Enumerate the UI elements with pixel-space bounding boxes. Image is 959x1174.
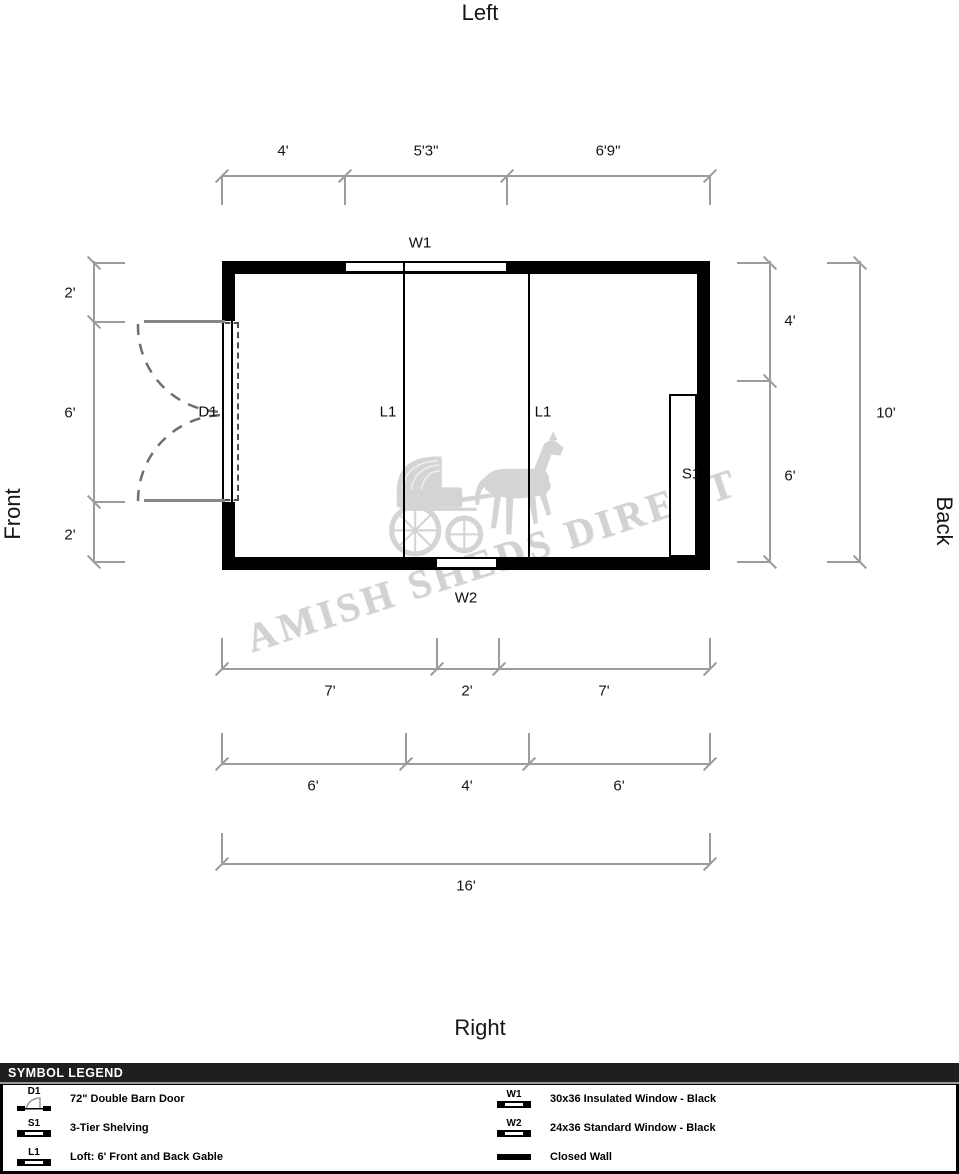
- dim-tick: [221, 638, 223, 668]
- label-w1: W1: [409, 235, 432, 252]
- legend-code: W1: [507, 1089, 522, 1100]
- shed-outer-walls: [222, 261, 710, 570]
- door-panel-top-open: [144, 320, 225, 323]
- legend-item-w2: W2 24x36 Standard Window - Black: [492, 1113, 716, 1142]
- window-w2: [436, 558, 497, 568]
- orientation-label-front: Front: [0, 488, 26, 539]
- label-s1: S1: [682, 466, 700, 483]
- legend-item-d1: D1 72" Double Barn Door: [12, 1084, 223, 1113]
- loft-symbol-icon: L1: [12, 1147, 56, 1166]
- dim-right-2: 6': [784, 468, 795, 485]
- dim-tick: [221, 833, 223, 863]
- shelving-symbol-icon: S1: [12, 1118, 56, 1137]
- label-l1-right: L1: [535, 404, 552, 421]
- dim-tick: [93, 501, 125, 503]
- label-l1-left: L1: [380, 404, 397, 421]
- door-panel-bottom-open: [144, 499, 225, 502]
- dim-tick: [528, 733, 530, 763]
- door-dashed-outline: [225, 322, 239, 501]
- legend-code: W2: [507, 1118, 522, 1129]
- dim-tick: [221, 175, 223, 205]
- dim-tick: [344, 175, 346, 205]
- legend-item-s1: S1 3-Tier Shelving: [12, 1113, 223, 1142]
- dim-right-outer-line: [859, 261, 861, 563]
- legend-desc: Closed Wall: [550, 1151, 612, 1163]
- dim-right-inner-line: [769, 261, 771, 563]
- dim-tick: [709, 175, 711, 205]
- dim-tick: [506, 175, 508, 205]
- dim-left-1: 2': [64, 285, 75, 302]
- dim-right-1: 4': [784, 313, 795, 330]
- legend-left-column: D1 72" Double Barn Door S1 3-Tier Shelvi…: [12, 1084, 223, 1171]
- dim-top-1: 4': [277, 143, 288, 160]
- dim-tick: [221, 733, 223, 763]
- dim-left-2: 6': [64, 405, 75, 422]
- legend-desc: 3-Tier Shelving: [70, 1122, 149, 1134]
- legend-code: L1: [28, 1147, 40, 1158]
- dim-tick: [93, 262, 125, 264]
- dim-top-3: 6'9": [596, 143, 621, 160]
- closed-wall-symbol-icon: [492, 1153, 536, 1160]
- dim-bottom1-3: 7': [598, 683, 609, 700]
- legend-item-l1: L1 Loft: 6' Front and Back Gable: [12, 1142, 223, 1171]
- legend-desc: 72" Double Barn Door: [70, 1093, 185, 1105]
- dim-bottom2-2: 4': [461, 778, 472, 795]
- dim-tick: [827, 561, 859, 563]
- dim-bottom2-3: 6': [613, 778, 624, 795]
- dim-bottom2-1: 6': [307, 778, 318, 795]
- orientation-label-right: Right: [454, 1015, 505, 1041]
- legend-right-column: W1 30x36 Insulated Window - Black W2 24x…: [492, 1084, 716, 1171]
- dim-tick: [827, 262, 859, 264]
- dim-top-2: 5'3": [414, 143, 439, 160]
- dim-right-total: 10': [876, 405, 896, 422]
- window-w2-symbol-icon: W2: [492, 1118, 536, 1137]
- legend-header-title: SYMBOL LEGEND: [8, 1066, 123, 1080]
- dim-tick: [737, 380, 769, 382]
- dim-left-3: 2': [64, 527, 75, 544]
- dim-left-line: [93, 261, 95, 563]
- legend-header: SYMBOL LEGEND: [0, 1063, 959, 1082]
- dim-tick: [498, 638, 500, 668]
- dim-tick: [93, 321, 125, 323]
- window-w1-symbol-icon: W1: [492, 1089, 536, 1108]
- label-d1: D1: [198, 404, 217, 421]
- legend-desc: 30x36 Insulated Window - Black: [550, 1093, 716, 1105]
- legend-desc: 24x36 Standard Window - Black: [550, 1122, 716, 1134]
- dim-bottom1-2: 2': [461, 683, 472, 700]
- dim-bottom-total: 16': [456, 878, 476, 895]
- dim-tick: [709, 733, 711, 763]
- legend-desc: Loft: 6' Front and Back Gable: [70, 1151, 223, 1163]
- label-w2: W2: [455, 590, 478, 607]
- loft-line-right: [528, 274, 530, 557]
- dim-tick: [737, 262, 769, 264]
- dim-tick: [93, 561, 125, 563]
- door-symbol-icon: D1: [12, 1086, 56, 1111]
- dim-tick: [405, 733, 407, 763]
- legend-item-w1: W1 30x36 Insulated Window - Black: [492, 1084, 716, 1113]
- dim-tick: [709, 638, 711, 668]
- dim-top-line: [222, 175, 710, 177]
- orientation-label-back: Back: [931, 497, 957, 546]
- dim-tick: [436, 638, 438, 668]
- dim-bottom-total-line: [222, 863, 710, 865]
- door-arc-glyph: [17, 1097, 51, 1111]
- window-w1: [345, 262, 507, 272]
- floor-plan-page: Left Right Front Back: [0, 0, 959, 1174]
- dim-bottom2-line: [222, 763, 710, 765]
- orientation-label-left: Left: [462, 0, 499, 26]
- loft-line-left: [403, 262, 405, 557]
- dim-bottom1-1: 7': [324, 683, 335, 700]
- dim-tick: [737, 561, 769, 563]
- dim-tick: [709, 833, 711, 863]
- door-jamb-outer: [222, 321, 224, 502]
- legend-code: S1: [28, 1118, 40, 1129]
- legend-code: D1: [28, 1086, 41, 1097]
- dim-bottom1-line: [222, 668, 710, 670]
- legend-item-closed-wall: Closed Wall: [492, 1142, 716, 1171]
